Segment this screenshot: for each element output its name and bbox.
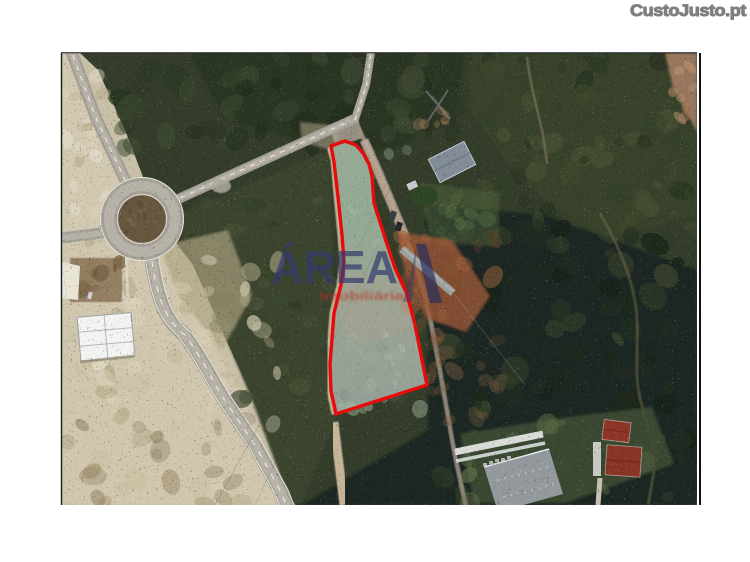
svg-text:ÁREA: ÁREA (271, 241, 398, 293)
svg-text:Imobiliária: Imobiliária (319, 289, 404, 303)
svg-text:CustoJusto.pt: CustoJusto.pt (630, 1, 747, 20)
